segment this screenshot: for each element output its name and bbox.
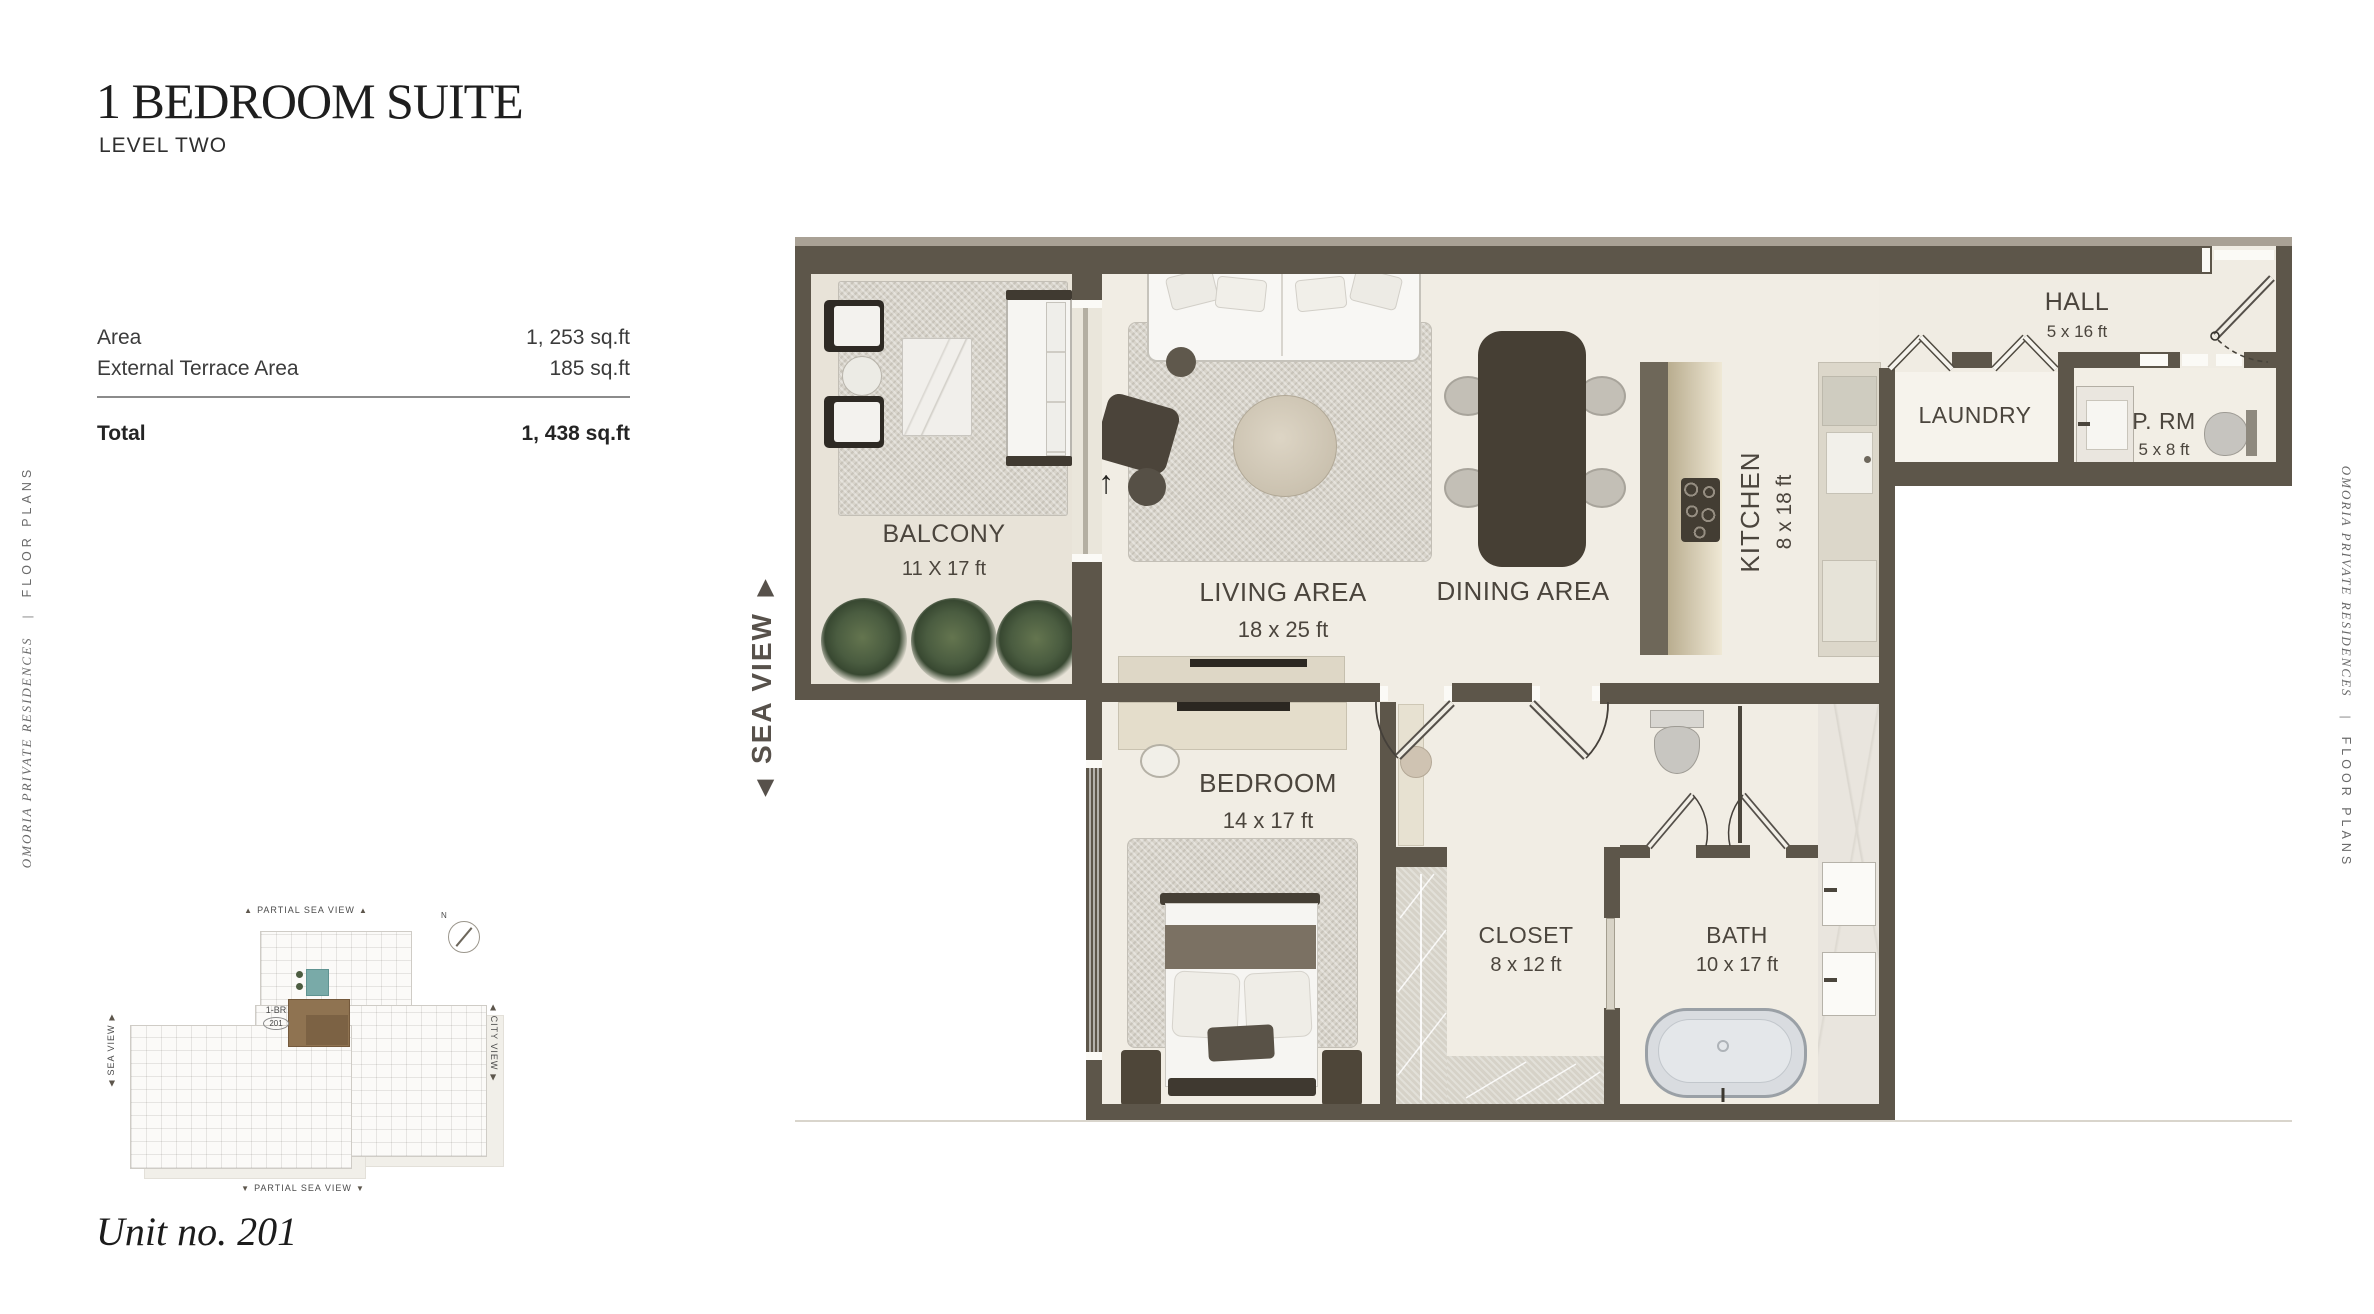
door-leaf (1649, 795, 1693, 847)
room-label-laundry: LAUNDRY (1919, 402, 2032, 429)
room-name: BATH (1696, 922, 1778, 949)
room-name: P. RM (2132, 408, 2195, 435)
unit-badge: 201 (263, 1017, 289, 1030)
room-label-powder: P. RM 5 x 8 ft (2132, 408, 2195, 460)
room-label-living: LIVING AREA 18 x 25 ft (1199, 577, 1366, 643)
triangle-icon: ◀ (489, 1004, 498, 1011)
room-label-closet: CLOSET 8 x 12 ft (1478, 922, 1573, 977)
triangle-icon: ▶ (107, 1013, 116, 1020)
caption-text: PARTIAL SEA VIEW (254, 1183, 352, 1193)
door-arc (1586, 702, 1608, 758)
caption-text: SEA VIEW (106, 1024, 116, 1075)
room-dims: 8 x 12 ft (1478, 954, 1573, 977)
unit-tag-text: 1-BR (258, 1005, 294, 1015)
compass-north-label: N (441, 911, 447, 920)
room-dims: 18 x 25 ft (1199, 617, 1366, 643)
room-dims: 11 X 17 ft (883, 558, 1006, 581)
room-name: CLOSET (1478, 922, 1573, 949)
triangle-icon: ▲ (244, 906, 253, 915)
caption-text: CITY VIEW (489, 1016, 499, 1071)
keyplan-top-caption: ▲PARTIAL SEA VIEW▲ (240, 905, 372, 915)
room-name: KITCHEN (1735, 451, 1766, 572)
window-glazing (1090, 768, 1098, 1052)
compass-needle (456, 927, 473, 947)
door-arc (1693, 795, 1707, 846)
room-label-bath: BATH 10 x 17 ft (1696, 922, 1778, 977)
room-name: HALL (2045, 288, 2110, 317)
keyplan-pool (306, 969, 329, 996)
room-label-bedroom: BEDROOM 14 x 17 ft (1199, 768, 1337, 834)
door-leaf (1743, 795, 1787, 847)
keyplan-right-caption: ◀CITY VIEW▶ (489, 1000, 499, 1085)
room-dims: 10 x 17 ft (1696, 954, 1778, 977)
room-name: BEDROOM (1199, 768, 1337, 799)
room-label-dining: DINING AREA (1436, 576, 1609, 607)
keyplan-unit-highlight-dark (306, 1015, 348, 1045)
room-label-hall: HALL 5 x 16 ft (2045, 288, 2110, 342)
tub-drain (1718, 1041, 1728, 1051)
room-dims: 14 x 17 ft (1199, 808, 1337, 834)
room-dims: 5 x 16 ft (2045, 322, 2110, 342)
compass: N (448, 921, 480, 953)
triangle-icon: ▲ (359, 906, 368, 915)
door-arc (1376, 702, 1398, 758)
triangle-icon: ▼ (241, 1184, 250, 1193)
keyplan-unit-tag: 1-BR 201 (258, 1005, 294, 1030)
triangle-icon: ▶ (489, 1074, 498, 1081)
room-name: LIVING AREA (1199, 577, 1366, 608)
floorplan-sheet: 1 BEDROOM SUITE LEVEL TWO Area 1, 253 sq… (0, 0, 2374, 1314)
keyplan-left-caption: ◀SEA VIEW▶ (106, 1009, 116, 1090)
entrance-door-leaf (2216, 278, 2272, 336)
keyplan-bottom-caption: ▼PARTIAL SEA VIEW▼ (237, 1183, 369, 1193)
room-name: DINING AREA (1436, 576, 1609, 607)
room-name: LAUNDRY (1919, 402, 2032, 429)
unit-number-label: Unit no. 201 (96, 1208, 297, 1255)
room-name: BALCONY (883, 520, 1006, 549)
caption-text: PARTIAL SEA VIEW (257, 905, 355, 915)
door-leaf (1398, 703, 1452, 757)
entrance-door-arc (2218, 340, 2268, 362)
door-leaf (1532, 703, 1586, 757)
room-label-balcony: BALCONY 11 X 17 ft (883, 520, 1006, 581)
wardrobe-lines (1398, 874, 1600, 1100)
triangle-icon: ▼ (356, 1184, 365, 1193)
keyplan-planting (296, 983, 303, 990)
keyplan: 1-BR 201 N ▲PARTIAL SEA VIEW▲ ▼PARTIAL S… (100, 893, 520, 1203)
room-dims: 8 x 18 ft (1773, 451, 1797, 572)
triangle-icon: ◀ (107, 1080, 116, 1087)
room-label-kitchen: KITCHEN 8 x 18 ft (1735, 451, 1797, 572)
bifold-doors (1890, 337, 2056, 369)
room-dims: 5 x 8 ft (2132, 440, 2195, 460)
keyplan-planting (296, 971, 303, 978)
